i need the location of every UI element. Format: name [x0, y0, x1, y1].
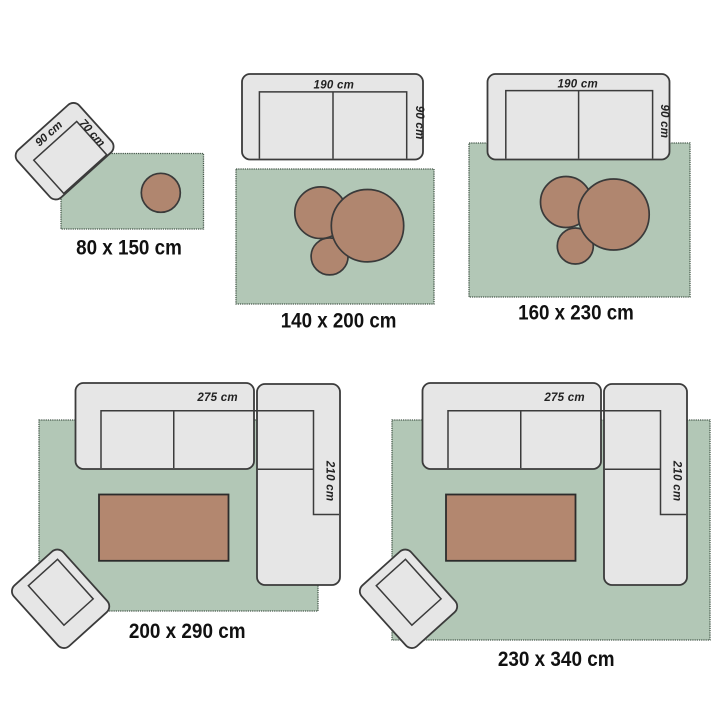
svg-text:210 cm: 210 cm	[324, 460, 336, 501]
svg-text:230 x 340 cm: 230 x 340 cm	[498, 647, 615, 671]
svg-text:275 cm: 275 cm	[196, 392, 237, 404]
svg-text:210 cm: 210 cm	[671, 460, 683, 501]
svg-text:190 cm: 190 cm	[314, 80, 354, 92]
svg-text:275 cm: 275 cm	[543, 392, 584, 404]
svg-text:190 cm: 190 cm	[557, 79, 597, 91]
svg-text:140 x 200 cm: 140 x 200 cm	[281, 308, 397, 332]
svg-text:160 x 230 cm: 160 x 230 cm	[518, 301, 634, 325]
svg-text:90 cm: 90 cm	[658, 104, 670, 138]
svg-text:90 cm: 90 cm	[413, 106, 425, 140]
svg-text:200 x 290 cm: 200 x 290 cm	[129, 619, 246, 643]
svg-text:80 x 150 cm: 80 x 150 cm	[76, 236, 182, 260]
